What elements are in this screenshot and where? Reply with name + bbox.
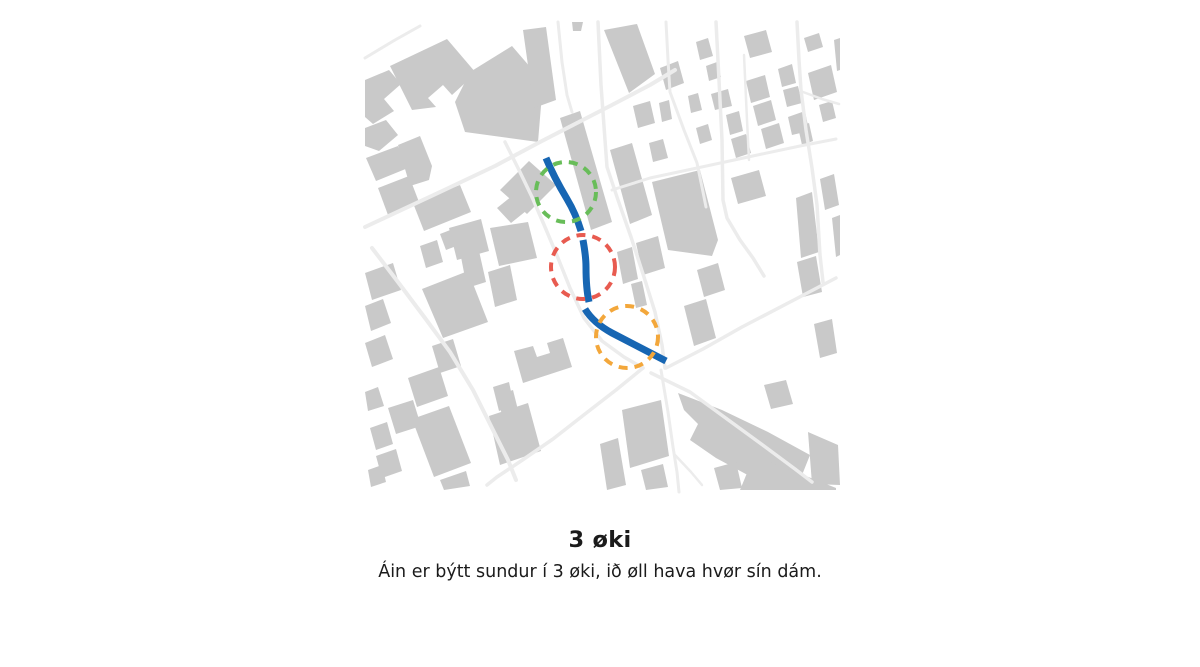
map (355, 18, 845, 496)
building (814, 319, 837, 358)
building (633, 101, 655, 128)
building (641, 464, 668, 490)
building (778, 64, 796, 87)
map-svg (355, 18, 845, 496)
building (370, 422, 393, 450)
building (365, 335, 393, 367)
building (490, 222, 537, 266)
building (600, 438, 626, 490)
building (697, 263, 725, 297)
road (365, 26, 420, 58)
building (804, 33, 823, 52)
river-segment (583, 240, 589, 302)
building (420, 240, 443, 268)
building (572, 22, 583, 31)
building (493, 382, 514, 411)
building (696, 124, 712, 144)
building (834, 38, 840, 71)
building (365, 387, 384, 411)
figure-caption: Áin er býtt sundur í 3 øki, ið øll hava … (0, 562, 1200, 582)
building (819, 101, 836, 122)
building (408, 367, 448, 407)
building (652, 170, 718, 256)
building (631, 281, 647, 308)
building (808, 432, 840, 485)
figure: 3 øki Áin er býtt sundur í 3 øki, ið øll… (0, 0, 1200, 667)
building (622, 400, 669, 468)
building (753, 100, 776, 126)
building (726, 111, 743, 135)
building (764, 380, 793, 409)
building (440, 471, 470, 490)
figure-title: 3 øki (0, 527, 1200, 553)
building (731, 170, 766, 204)
building (659, 100, 672, 122)
building (604, 24, 655, 93)
building (783, 86, 802, 107)
building (746, 75, 770, 103)
building (488, 265, 517, 307)
building (412, 406, 471, 477)
building (744, 30, 772, 58)
building (649, 139, 668, 162)
building (365, 299, 391, 331)
building (684, 299, 716, 346)
building (832, 215, 840, 257)
building (365, 120, 398, 151)
building (696, 38, 713, 60)
building (761, 123, 784, 149)
building (365, 70, 401, 124)
building (449, 219, 489, 260)
road (558, 22, 572, 112)
building (688, 93, 702, 113)
building (820, 174, 839, 210)
building (514, 338, 572, 383)
